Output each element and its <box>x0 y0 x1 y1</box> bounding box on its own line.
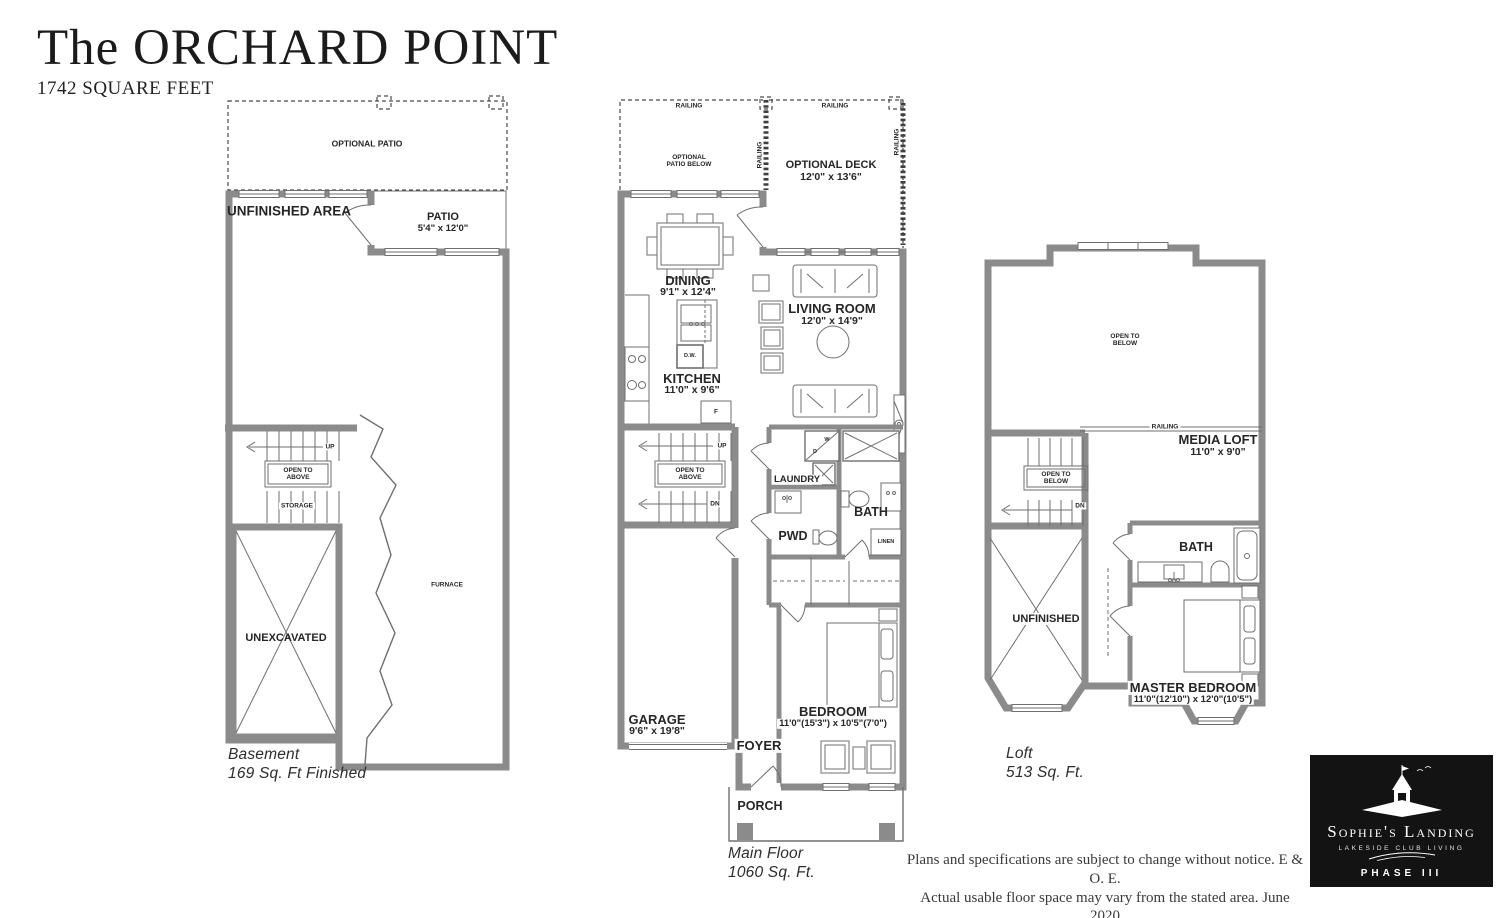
master-bed <box>1184 586 1260 686</box>
main-floor-label: Main Floor 1060 Sq. Ft. <box>728 845 815 883</box>
loft-plan: OPEN TO BELOW RAILING MEDIA LOFT 11'0" x… <box>980 238 1270 748</box>
label-porch: PORCH <box>737 800 782 814</box>
loft-drawing <box>980 238 1270 748</box>
wave-swoosh-icon <box>1367 852 1437 861</box>
label-dn: DN <box>708 500 721 507</box>
basement-plan: OPTIONAL PATIO UNFINISHED AREA PATIO 5'4… <box>225 95 510 785</box>
label-living-room-dim: 12'0" x 14'9" <box>801 316 863 328</box>
label-laundry: LAUNDRY <box>772 475 822 485</box>
label-railing: RAILING <box>1150 423 1181 430</box>
loft-name: Loft <box>1006 745 1084 764</box>
bedroom-furniture <box>821 609 897 773</box>
loft-area: 513 Sq. Ft. <box>1006 764 1084 783</box>
label-washer: W <box>824 437 829 443</box>
porch-outline <box>729 787 903 841</box>
label-open-to-above: OPEN TO ABOVE <box>275 467 321 481</box>
label-kitchen-dim: 11'0" x 9'6" <box>664 385 719 397</box>
basement-drawing <box>225 95 510 785</box>
label-dn: DN <box>1073 502 1086 509</box>
label-furnace: FURNACE <box>431 581 463 588</box>
label-optional-deck: OPTIONAL DECK <box>786 159 877 171</box>
label-up: UP <box>715 442 728 449</box>
label-up: UP <box>323 443 336 450</box>
label-pwd: PWD <box>776 530 809 544</box>
floorplan-sheet: The ORCHARD POINT 1742 SQUARE FEET <box>0 0 1512 918</box>
loft-floor-label: Loft 513 Sq. Ft. <box>1006 745 1084 783</box>
label-storage: STORAGE <box>279 502 315 509</box>
label-dishwasher: D.W. <box>684 353 696 359</box>
label-loft-bath: BATH <box>1179 541 1213 555</box>
disclaimer-line2: Actual usable floor space may vary from … <box>905 889 1305 918</box>
label-optional-patio: OPTIONAL PATIO <box>332 139 403 148</box>
label-patio-dim: 5'4" x 12'0" <box>418 224 469 234</box>
brand-tagline: LAKESIDE CLUB LIVING <box>1338 845 1464 852</box>
label-optional-patio-below: OPTIONAL PATIO BELOW <box>662 154 716 168</box>
basement-name: Basement <box>228 746 366 765</box>
label-media-loft-dim: 11'0" x 9'0" <box>1190 447 1245 459</box>
label-fridge: F <box>714 408 718 415</box>
disclaimer: Plans and specifications are subject to … <box>905 851 1305 918</box>
label-open-to-below-stairs: OPEN TO BELOW <box>1033 471 1079 485</box>
label-railing-deck: RAILING <box>893 129 900 156</box>
label-railing-tl: RAILING <box>676 102 703 109</box>
basement-area: 169 Sq. Ft Finished <box>228 765 366 784</box>
label-unfinished: UNFINISHED <box>1010 613 1081 625</box>
brand-phase: PHASE III <box>1361 868 1443 879</box>
brand-name: Sophie's Landing <box>1327 822 1475 842</box>
page-title: The ORCHARD POINT <box>37 22 558 76</box>
label-master-bedroom-dim: 11'0"(12'10") x 12'0"(10'5") <box>1132 695 1254 705</box>
label-dryer: D <box>813 449 817 455</box>
label-railing-divider: RAILING <box>756 142 763 169</box>
label-patio: PATIO <box>427 211 459 223</box>
label-media-loft: MEDIA LOFT <box>1179 433 1258 447</box>
turret-icon <box>1357 764 1447 820</box>
label-open-to-below: OPEN TO BELOW <box>1102 333 1148 347</box>
label-open-to-above: OPEN TO ABOVE <box>667 467 713 481</box>
main-floor-plan: RAILING RAILING RAILING RAILING OPTIONAL… <box>617 95 907 850</box>
label-living-room: LIVING ROOM <box>788 302 875 316</box>
brand-logo: Sophie's Landing LAKESIDE CLUB LIVING PH… <box>1310 755 1493 887</box>
label-railing-tr: RAILING <box>822 102 849 109</box>
main-floor-name: Main Floor <box>728 845 815 864</box>
label-foyer: FOYER <box>735 739 784 753</box>
basement-floor-label: Basement 169 Sq. Ft Finished <box>228 746 366 784</box>
dining-table <box>647 214 733 278</box>
label-linen: LINEN <box>878 539 895 545</box>
label-unfinished-area: UNFINISHED AREA <box>227 205 351 220</box>
label-unexcavated: UNEXCAVATED <box>245 632 326 644</box>
main-floor-area: 1060 Sq. Ft. <box>728 864 815 883</box>
label-bedroom-dim: 11'0"(15'3") x 10'5"(7'0") <box>777 719 889 729</box>
title-block: The ORCHARD POINT 1742 SQUARE FEET <box>37 22 558 100</box>
label-garage-dim: 9'6" x 19'8" <box>629 726 685 738</box>
label-dining-dim: 9'1" x 12'4" <box>660 287 716 299</box>
disclaimer-line1: Plans and specifications are subject to … <box>905 851 1305 889</box>
label-bath: BATH <box>854 506 888 520</box>
label-optional-deck-dim: 12'0" x 13'6" <box>800 172 862 184</box>
